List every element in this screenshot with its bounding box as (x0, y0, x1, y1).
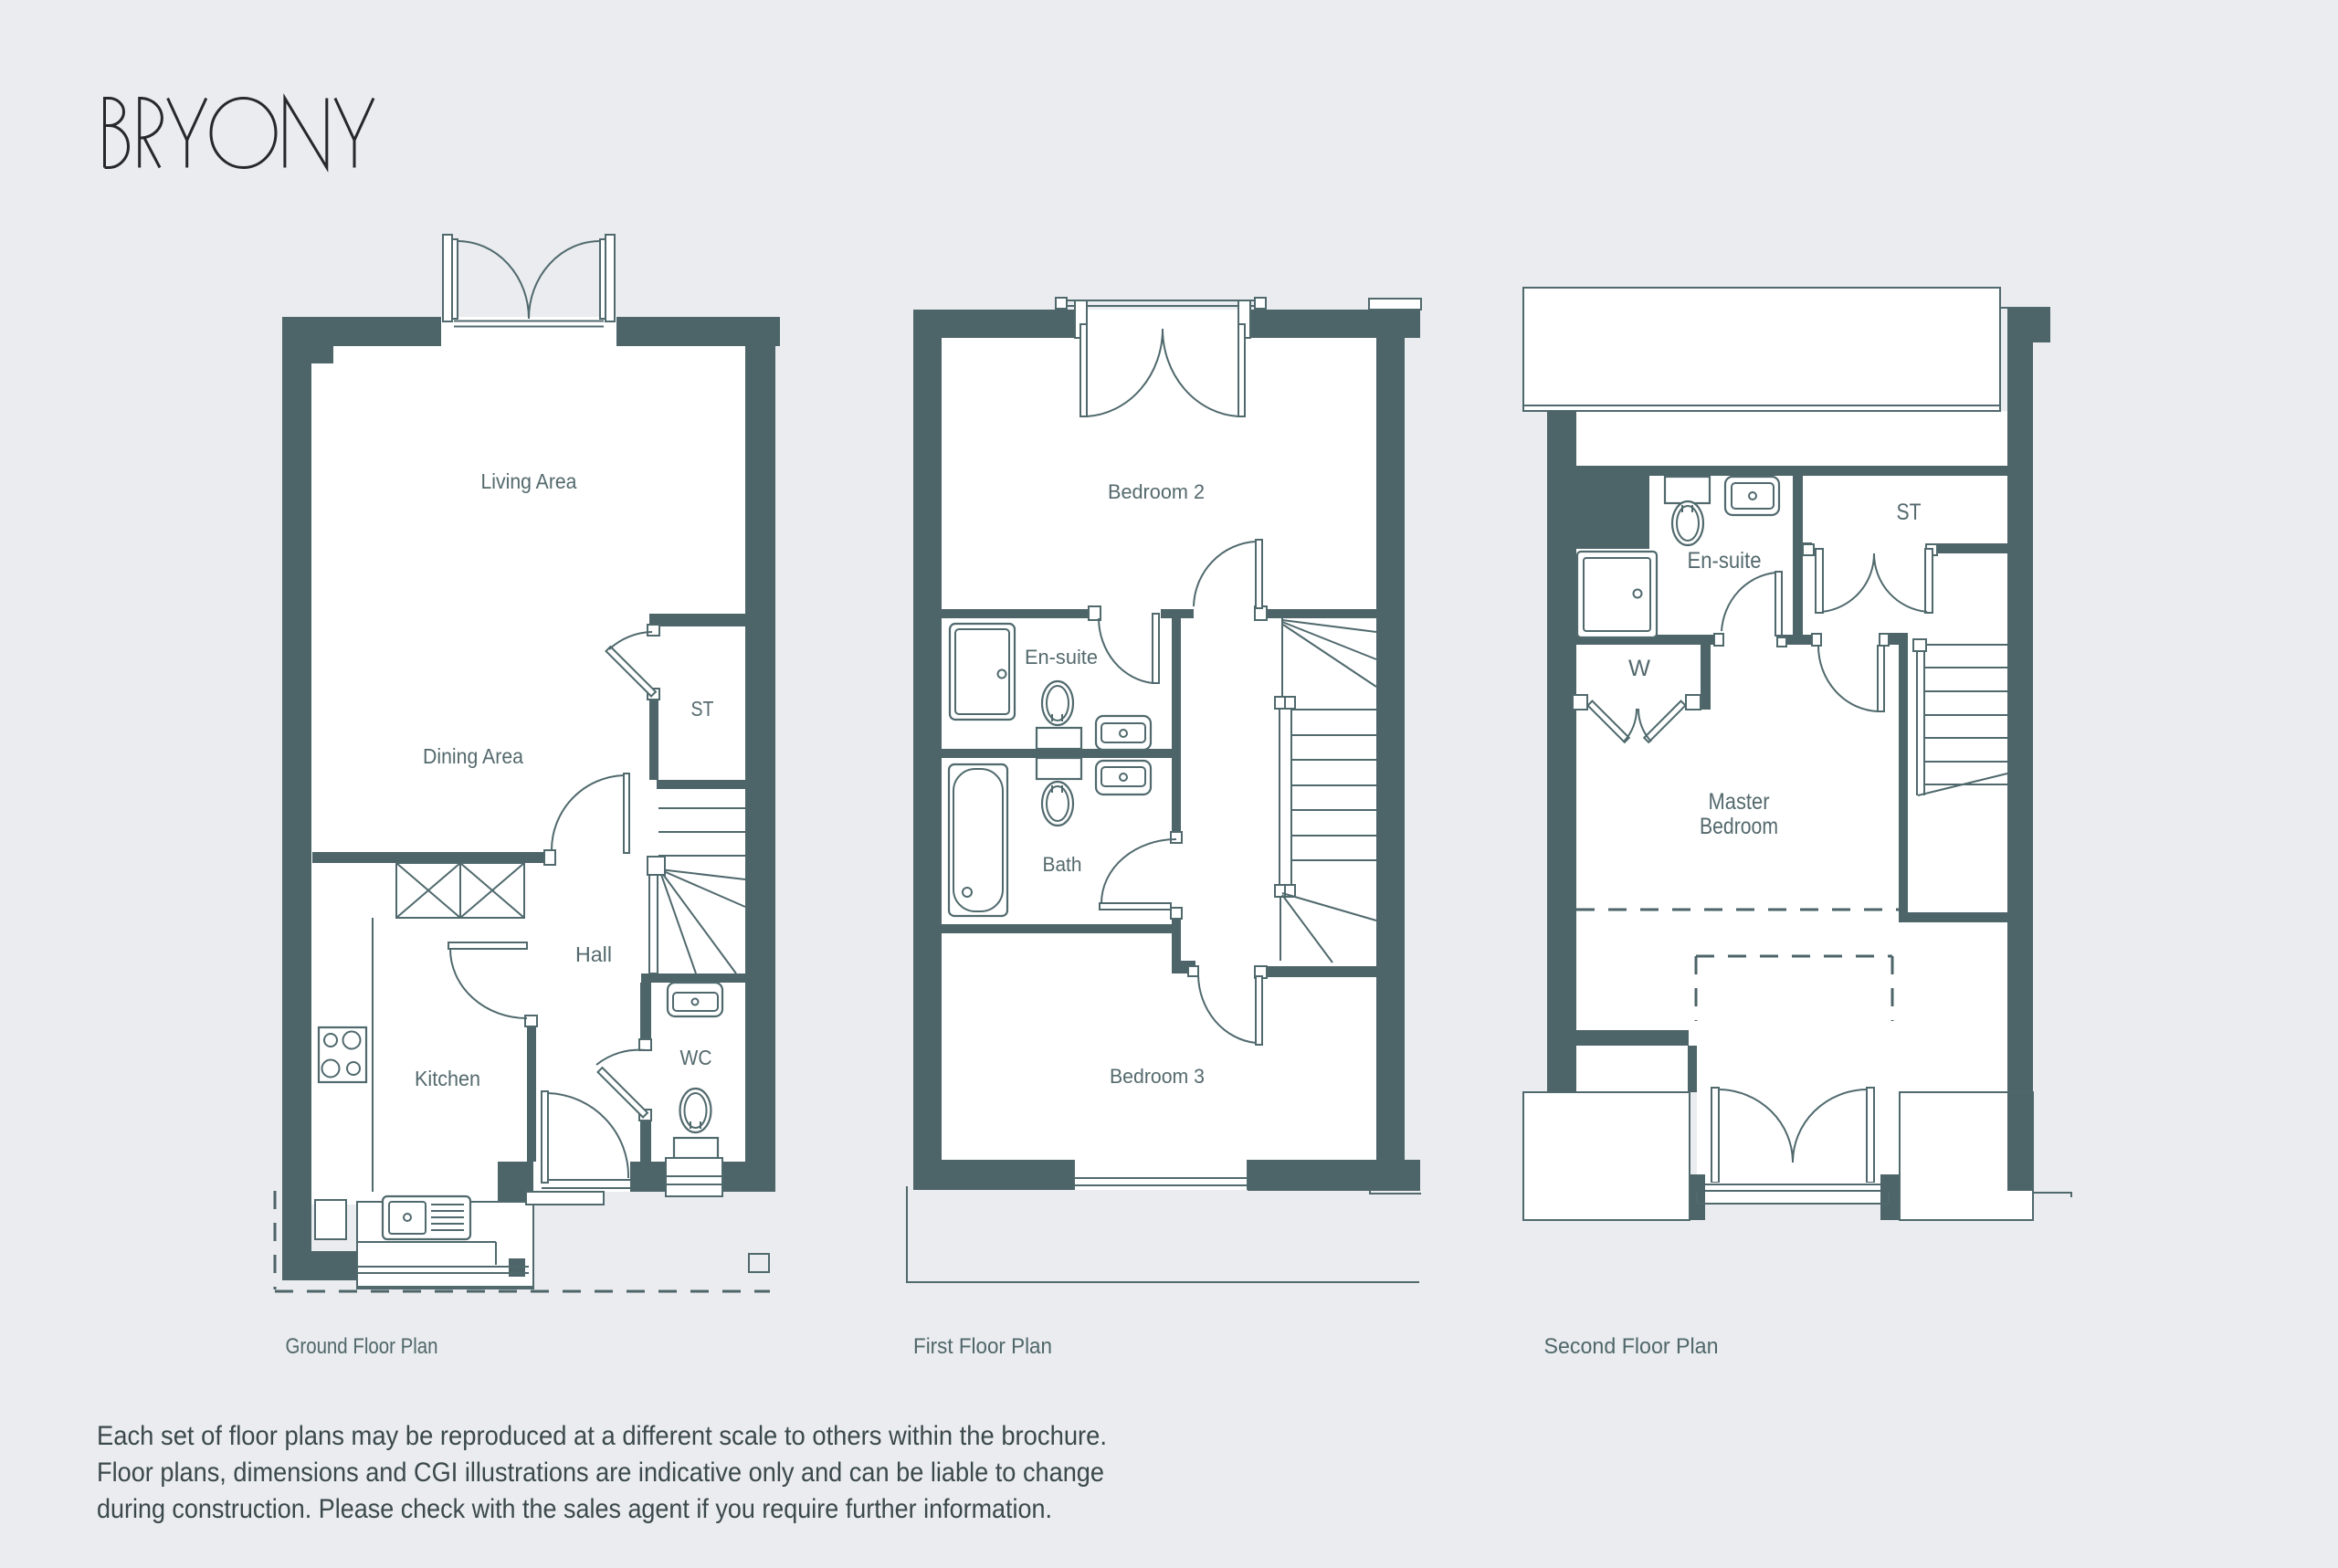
svg-text:W: W (1628, 656, 1650, 681)
svg-text:ST: ST (1897, 500, 1922, 525)
svg-text:Floor plans, dimensions and CG: Floor plans, dimensions and CGI illustra… (97, 1458, 1104, 1488)
svg-text:Bath: Bath (1043, 853, 1082, 876)
svg-text:First Floor Plan: First Floor Plan (913, 1334, 1052, 1359)
svg-text:Living Area: Living Area (481, 469, 577, 493)
svg-text:En-suite: En-suite (1688, 548, 1762, 574)
svg-text:Ground Floor Plan: Ground Floor Plan (286, 1334, 438, 1359)
svg-text:Bedroom: Bedroom (1700, 814, 1778, 839)
svg-text:Master: Master (1709, 789, 1770, 815)
svg-text:ST: ST (691, 697, 714, 721)
svg-text:Bedroom 3: Bedroom 3 (1110, 1065, 1205, 1088)
svg-text:WC: WC (680, 1046, 712, 1069)
svg-text:Hall: Hall (575, 942, 612, 966)
svg-text:Kitchen: Kitchen (415, 1067, 480, 1090)
svg-text:during construction. Please ch: during construction. Please check with t… (97, 1494, 1052, 1524)
svg-text:Each set of floor plans may be: Each set of floor plans may be reproduce… (97, 1421, 1107, 1451)
svg-text:Dining Area: Dining Area (423, 744, 523, 768)
svg-text:En-suite: En-suite (1025, 646, 1098, 668)
svg-text:Bedroom 2: Bedroom 2 (1108, 480, 1205, 503)
svg-text:Second Floor Plan: Second Floor Plan (1544, 1334, 1719, 1359)
